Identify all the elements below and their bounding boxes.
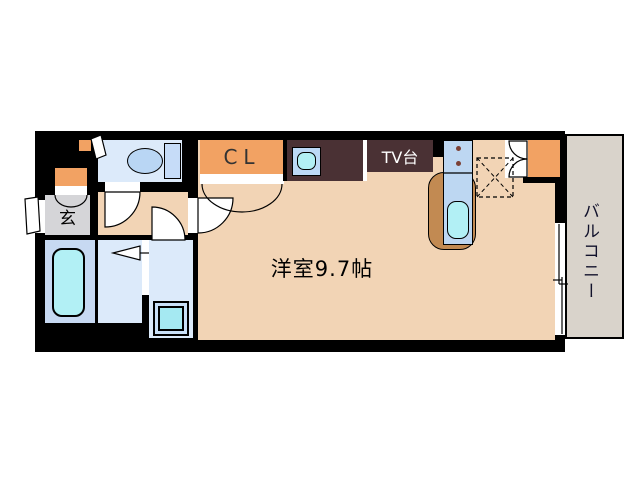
- balcony-label: バルコニー: [580, 192, 602, 312]
- storage-cabinet: [528, 140, 560, 177]
- shoe-cabinet-doors: [55, 186, 87, 195]
- storage-double-doors: [505, 140, 528, 178]
- toilet-tank: [164, 143, 181, 179]
- main-room-label: 洋室9.7帖: [222, 253, 422, 283]
- washbasin-bowl: [297, 152, 316, 170]
- washroom-door-opening: [152, 235, 185, 240]
- genkan-label: 玄: [45, 204, 90, 229]
- closet-doors: [200, 174, 284, 184]
- genkan-hall-wall: [90, 192, 98, 235]
- stove-burner-dot: [456, 161, 461, 166]
- toilet-door-opening: [105, 182, 140, 192]
- floorplan: CL TV台 バルコニー: [0, 0, 638, 480]
- closet-label: CL: [223, 145, 260, 169]
- kitchen-sink: [447, 201, 469, 239]
- wall-block: [433, 140, 443, 157]
- washing-machine: [158, 306, 184, 331]
- wall-under-storage: [523, 177, 565, 183]
- entrance-door-opening: [35, 200, 45, 233]
- main-room-door-opening: [188, 198, 198, 233]
- stove-burner-dot: [456, 146, 461, 151]
- pipe-space: [79, 140, 91, 151]
- toilet-bowl: [127, 148, 163, 174]
- closet-box: CL: [200, 140, 284, 174]
- washroom-floor: [98, 240, 142, 323]
- bath-washroom-wall: [95, 240, 98, 323]
- tv-stand-label: TV台: [382, 144, 419, 168]
- bathtub: [52, 248, 85, 317]
- hallway-floor: [98, 192, 188, 235]
- washroom-laundry-opening: [142, 240, 149, 295]
- shoe-cabinet: [55, 168, 87, 186]
- tv-stand-box: TV台: [367, 140, 433, 172]
